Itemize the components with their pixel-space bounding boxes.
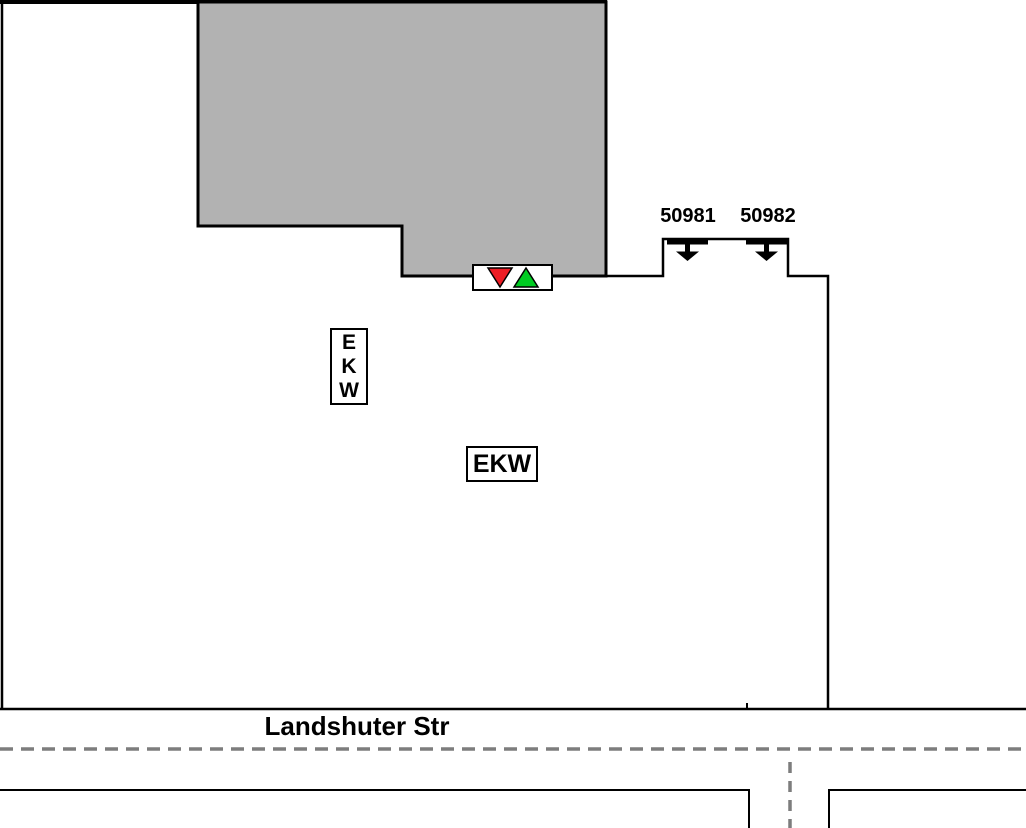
south-block-right-outline — [829, 790, 1026, 828]
gate-50982-bar — [746, 239, 787, 245]
down-triangle-icon — [488, 268, 512, 287]
entrance-exit-marker[interactable] — [472, 264, 553, 291]
gate-50981-label[interactable]: 50981 — [660, 205, 716, 227]
street-name-label: Landshuter Str — [265, 712, 450, 740]
gate-50982-symbol[interactable] — [746, 239, 787, 261]
gate-50981-arrow-stem — [685, 245, 690, 252]
ekw-vertical-label-box[interactable]: E K W — [330, 328, 368, 405]
gate-50982-arrow-down-icon — [755, 252, 778, 262]
entrance-exit-triangles — [486, 266, 540, 289]
gate-50982-label[interactable]: 50982 — [740, 205, 796, 227]
gate-50981-symbol[interactable] — [667, 239, 708, 261]
site-plan-canvas: 50981 50982 E K W EKW Landshuter Str — [0, 0, 1026, 828]
up-triangle-icon — [514, 268, 538, 287]
gate-50982-arrow-stem — [764, 245, 769, 252]
ekw-horizontal-label-box[interactable]: EKW — [466, 446, 538, 482]
south-block-left-outline — [0, 790, 749, 828]
east-property-boundary-fence-line — [606, 239, 828, 710]
building-footprint[interactable] — [198, 2, 606, 276]
gate-50981-bar — [667, 239, 708, 245]
gate-50981-arrow-down-icon — [676, 252, 699, 262]
site-plan-linework — [0, 0, 1026, 828]
